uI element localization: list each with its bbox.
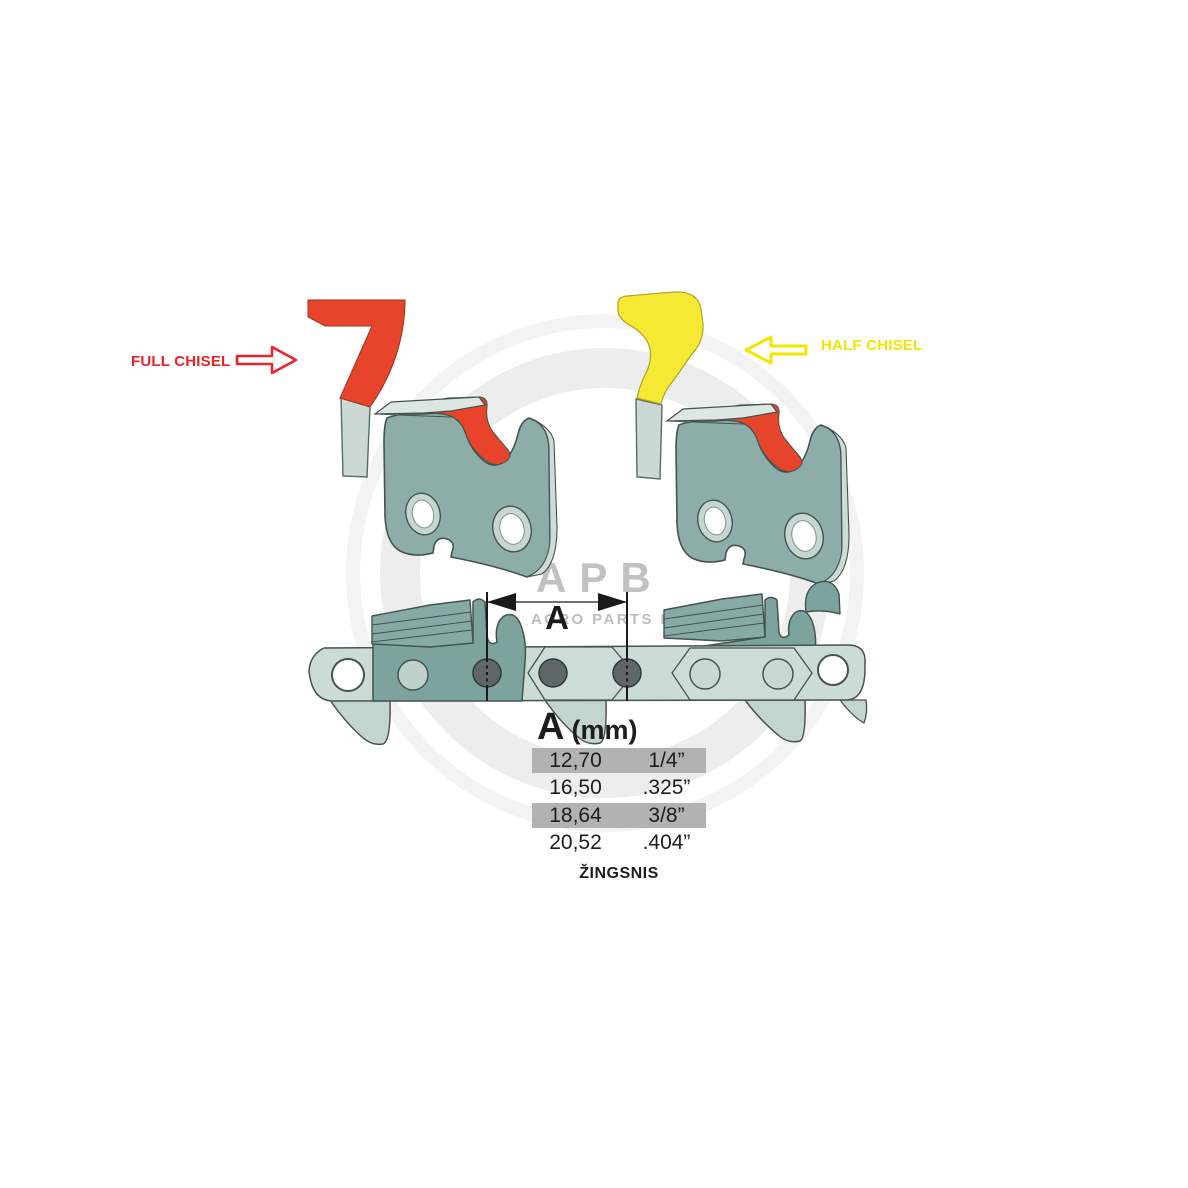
pitch-table-row: 12,70 1/4” [532, 748, 706, 773]
pitch-table-header: A (mm) [537, 706, 637, 749]
half-chisel-shank [636, 399, 662, 479]
strap-hole [332, 659, 364, 691]
rivet-boss [763, 659, 793, 689]
full-chisel-arrow-icon [237, 347, 296, 373]
half-chisel-label: HALF CHISEL [821, 337, 922, 354]
strap-hole [818, 655, 848, 685]
drive-link-tooth [745, 700, 805, 742]
pitch-inch-value: 3/8” [619, 804, 706, 828]
pitch-table-header-unit: (mm) [571, 715, 637, 746]
half-chisel-shape [618, 292, 703, 404]
chain-cutter-left [372, 599, 525, 701]
pitch-inch-value: .404” [619, 831, 706, 855]
pitch-mm-value: 16,50 [532, 776, 619, 800]
full-chisel-label: FULL CHISEL [131, 353, 230, 370]
half-chisel-cutter-link [667, 404, 849, 584]
pitch-mm-value: 12,70 [532, 749, 619, 773]
pitch-inch-value: .325” [619, 776, 706, 800]
dimension-arrowhead-right [598, 593, 627, 611]
pitch-mm-value: 20,52 [532, 831, 619, 855]
depth-gauge-bump [805, 581, 840, 614]
pitch-caption: ŽINGSNIS [532, 865, 706, 883]
pitch-dimension-label: A [534, 599, 580, 637]
pitch-table-row: 18,64 3/8” [532, 803, 706, 828]
full-chisel-shape [308, 300, 405, 407]
full-chisel-cutter-link [375, 397, 557, 577]
drive-link-tooth [330, 700, 390, 744]
pitch-table-header-symbol: A [537, 706, 564, 749]
half-chisel-arrow-icon [746, 337, 806, 363]
rivet-boss [690, 659, 720, 689]
diagram-artwork [0, 0, 1188, 1188]
chainsaw-chain-pitch-diagram: APB AGRO PARTS BALTIJA [0, 0, 1188, 1188]
rivet-boss [398, 660, 428, 690]
drive-link-tooth [840, 700, 867, 723]
full-chisel-shank [341, 398, 370, 477]
pitch-table-row: 16,50 .325” [532, 775, 706, 800]
dimension-arrowhead-left [487, 593, 516, 611]
pitch-mm-value: 18,64 [532, 804, 619, 828]
pitch-inch-value: 1/4” [619, 749, 706, 773]
pitch-table-row: 20,52 .404” [532, 830, 706, 855]
rivet [539, 659, 567, 687]
